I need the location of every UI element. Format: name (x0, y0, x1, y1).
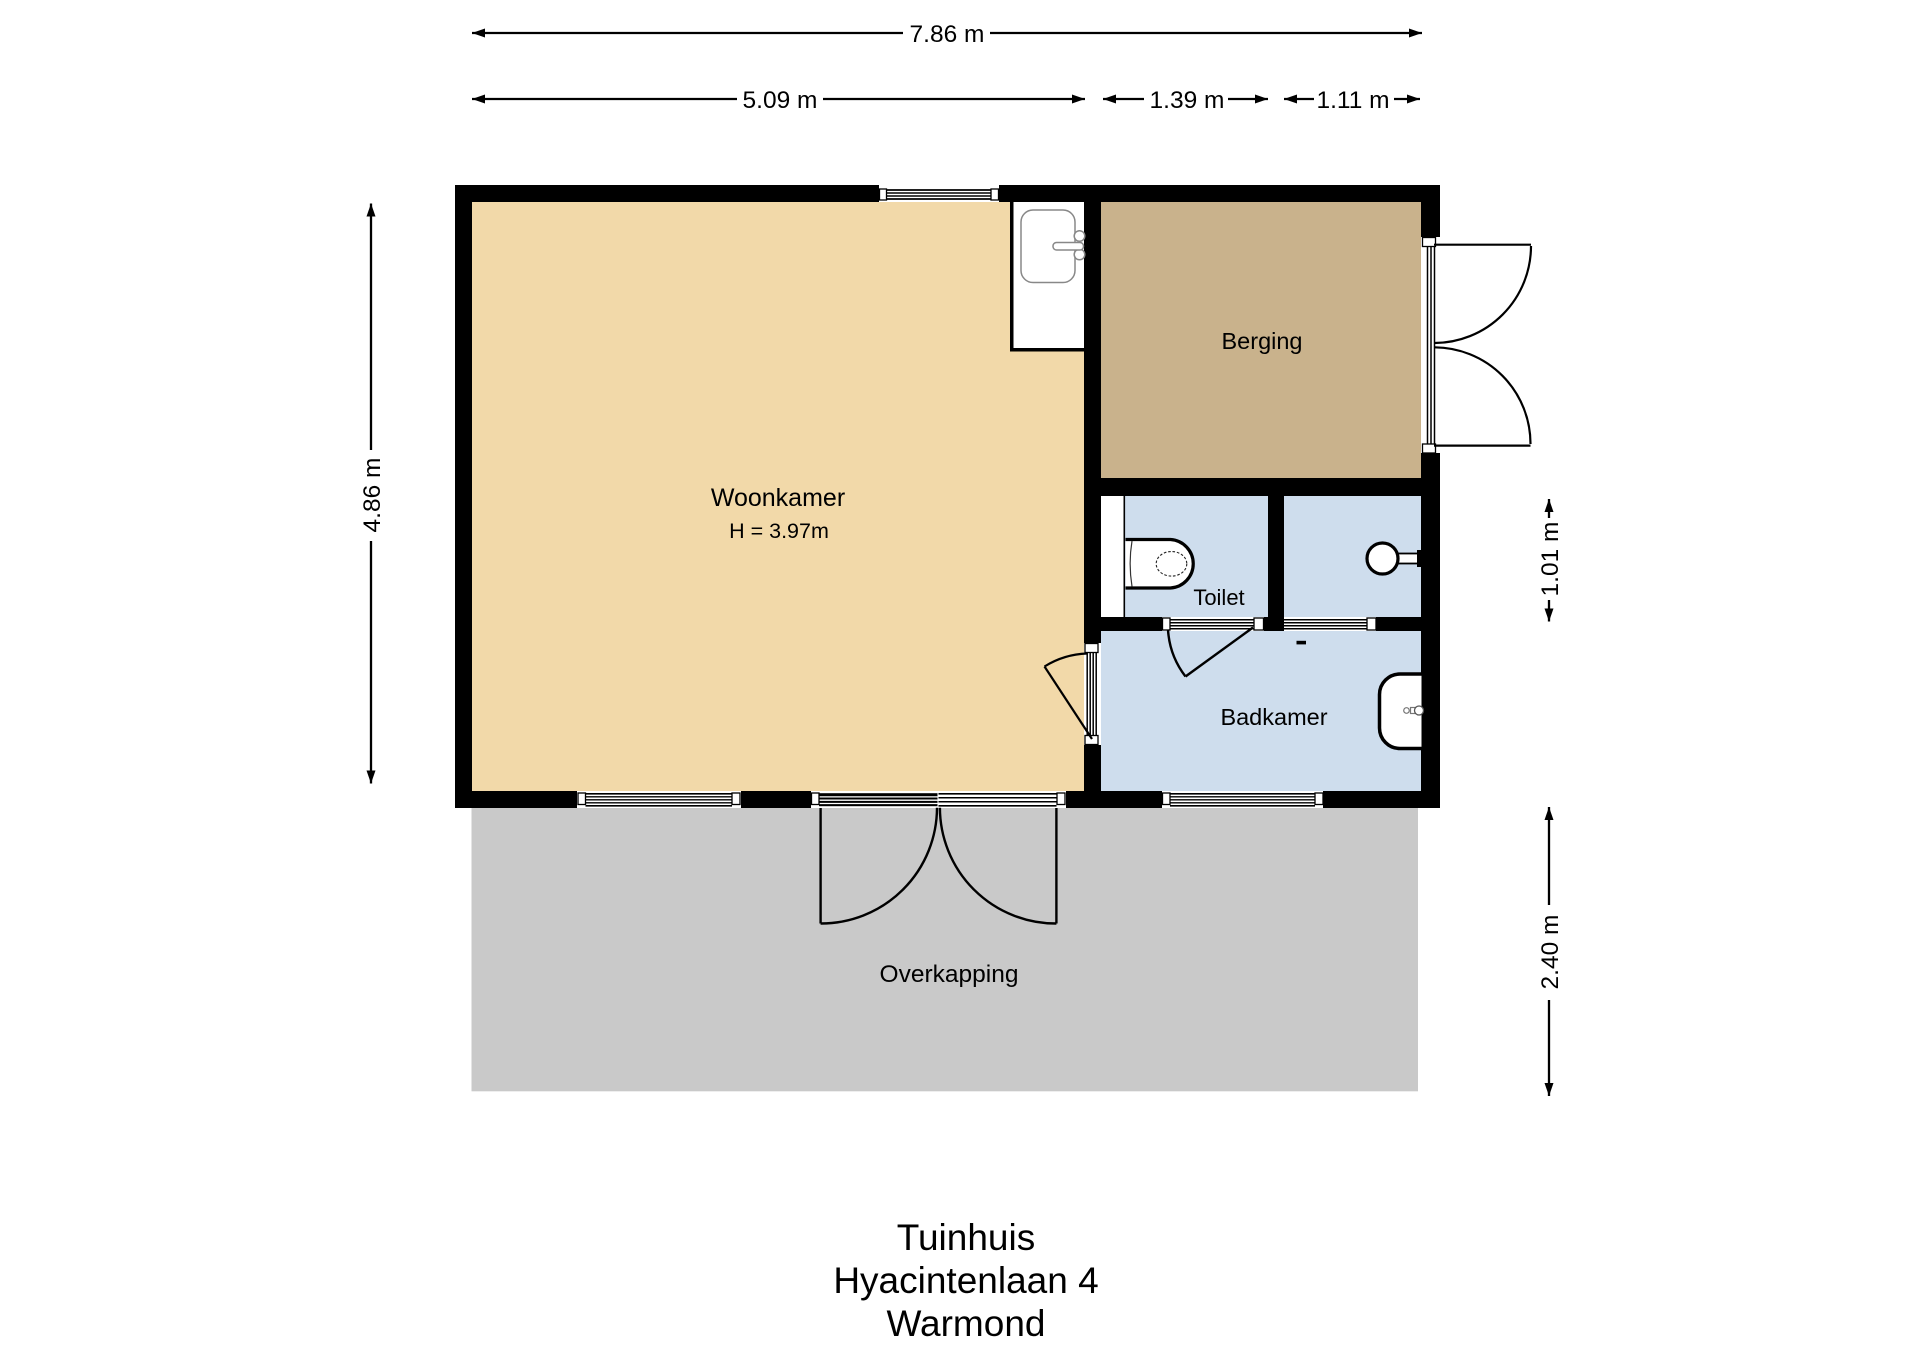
svg-text:Overkapping: Overkapping (880, 961, 1019, 988)
svg-text:7.86 m: 7.86 m (910, 21, 985, 48)
svg-text:H = 3.97m: H = 3.97m (729, 519, 829, 543)
svg-text:1.11 m: 1.11 m (1316, 87, 1389, 114)
svg-text:Toilet: Toilet (1193, 585, 1244, 610)
svg-text:Tuinhuis: Tuinhuis (897, 1217, 1035, 1258)
svg-text:Berging: Berging (1222, 328, 1303, 354)
svg-text:4.86 m: 4.86 m (359, 458, 386, 533)
svg-text:Hyacintenlaan 4: Hyacintenlaan 4 (833, 1260, 1098, 1301)
svg-text:1.39 m: 1.39 m (1150, 87, 1225, 114)
svg-text:Warmond: Warmond (886, 1303, 1045, 1344)
svg-text:5.09 m: 5.09 m (743, 87, 818, 114)
svg-text:Woonkamer: Woonkamer (711, 484, 845, 512)
svg-text:1.01 m: 1.01 m (1537, 522, 1564, 597)
svg-text:Badkamer: Badkamer (1220, 704, 1327, 730)
svg-text:2.40 m: 2.40 m (1537, 915, 1564, 990)
